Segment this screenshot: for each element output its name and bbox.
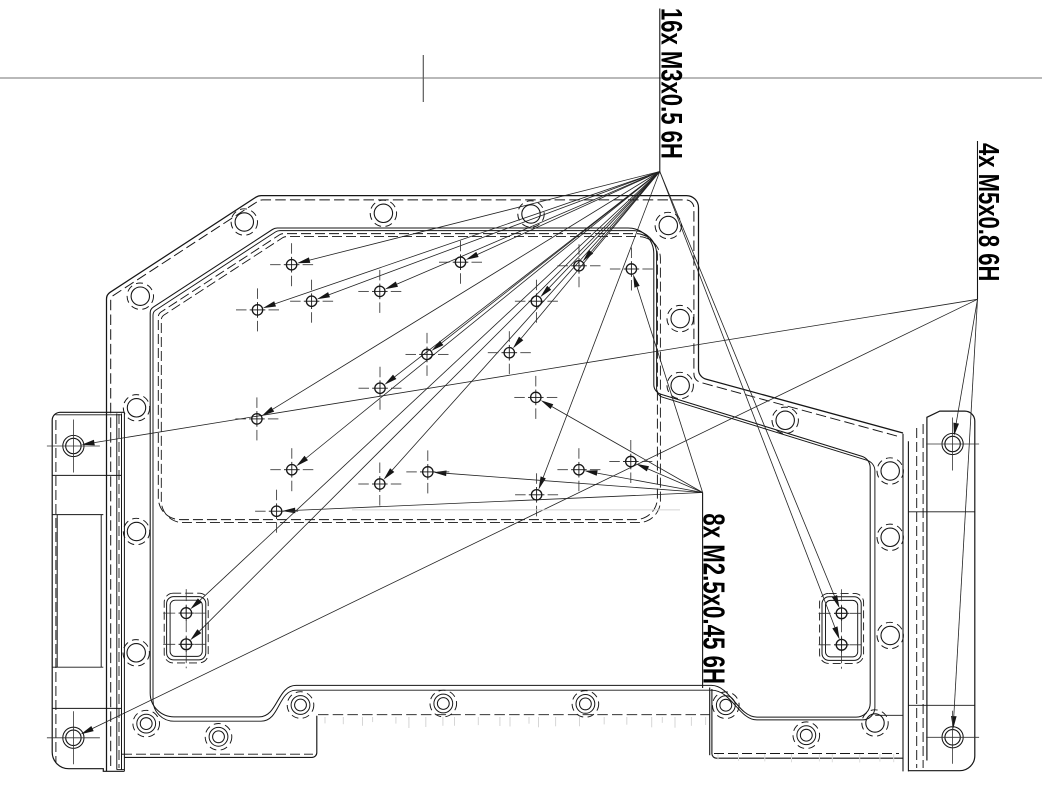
svg-text:4x M5x0.8 6H: 4x M5x0.8 6H (972, 143, 1004, 281)
svg-text:8x M2.5x0.45 6H: 8x M2.5x0.45 6H (697, 513, 731, 684)
svg-text:16x M3x0.5 6H: 16x M3x0.5 6H (655, 8, 689, 159)
